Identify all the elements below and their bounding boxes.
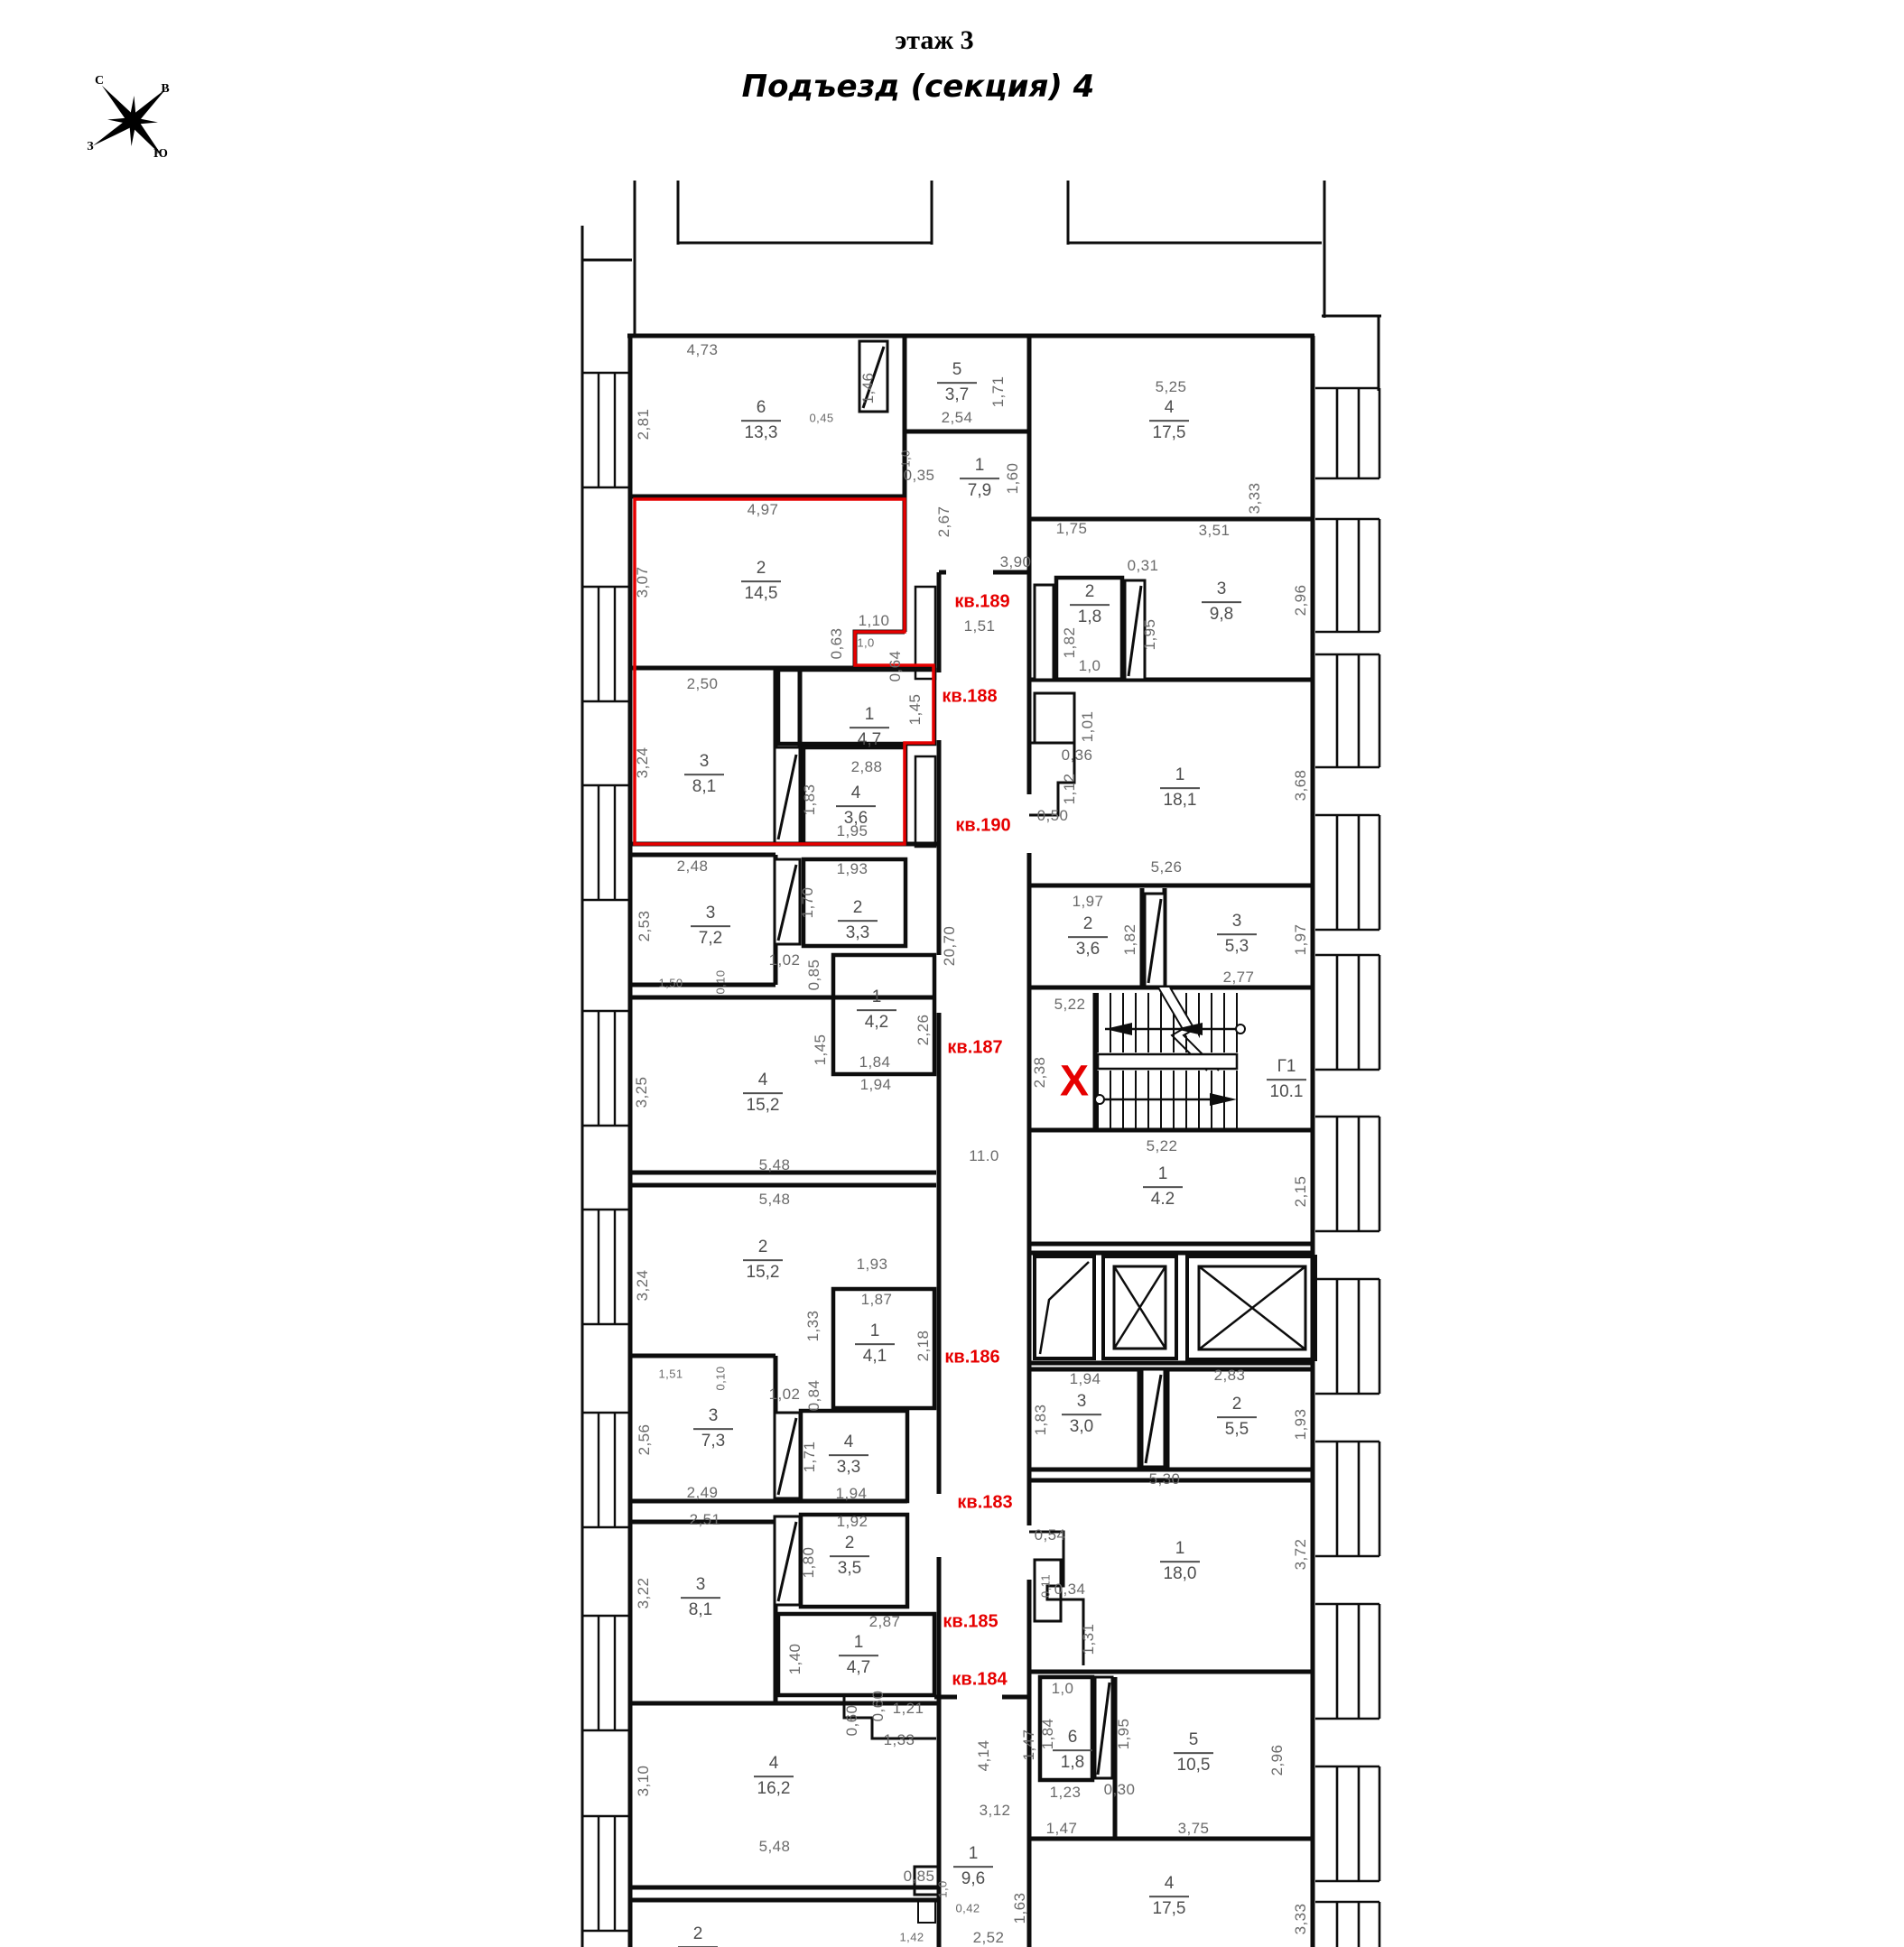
dimension-text: 1,92 [837,1513,868,1531]
room-label: Г110.1 [1267,1057,1306,1102]
dimension-text: 1,71 [989,376,1008,408]
room-area: 4.2 [1151,1190,1175,1210]
dimension-text: 1,84 [1039,1719,1057,1750]
room-label: 38,1 [684,752,724,797]
room-number: 1 [872,987,882,1007]
room-area: 7,2 [699,929,722,949]
dimension-text: 0,34 [1054,1581,1086,1599]
dimension-text: 1,83 [801,784,819,816]
dimension-text: 1,82 [1061,627,1079,659]
room-area: 8,1 [689,1600,712,1620]
dimension-text: 5,25 [1156,378,1187,396]
room-label: 14,7 [839,1633,878,1678]
room-number: 1 [975,456,985,476]
dimension-text: 3,90 [1000,553,1032,571]
fraction-bar [1217,1416,1257,1418]
dimension-text: 1,51 [964,617,996,635]
room-area: 16,2 [757,1779,791,1799]
dimension-text: 3,24 [634,747,652,779]
room-label: 37,3 [693,1406,733,1451]
dimension-text: 1,95 [837,822,868,840]
room-label: 39,8 [1202,579,1241,625]
room-label: 416,2 [754,1754,794,1799]
dimension-text: 0,63 [828,628,846,660]
room-number: 1 [870,1321,880,1341]
dimension-text: 2,96 [1292,585,1310,617]
dimension-text: 1,0 [1079,657,1101,675]
fraction-bar [1267,1079,1306,1080]
dimension-text: 1,42 [900,1931,924,1944]
room-area: 3,6 [1076,940,1100,960]
fraction-bar [754,1775,794,1777]
dimension-text: 5,26 [1151,858,1183,876]
fraction-bar [684,774,724,775]
dimension-text: 0,85 [904,1868,935,1886]
room-label: 37,2 [691,904,730,949]
room-area: 4,1 [863,1347,887,1367]
room-number: 5 [1189,1730,1199,1750]
room-number: 2 [757,559,766,579]
dimension-text: 2,81 [635,409,653,440]
room-area: 3,0 [1070,1417,1093,1437]
dimension-text: 0,42 [956,1902,980,1915]
dimension-text: 3,22 [635,1578,653,1609]
apartment-number-label: кв.190 [955,816,1010,837]
dimension-text: 3,12 [980,1802,1011,1820]
apartment-number-label: кв.184 [952,1670,1007,1691]
room-number: 4 [758,1071,768,1090]
room-label: 2 [678,1924,718,1947]
room-number: Г1 [1277,1057,1296,1077]
fraction-bar [829,1454,868,1456]
fraction-bar [681,1597,720,1599]
room-label: 118,1 [1160,765,1200,811]
dimension-text: 2,48 [677,858,709,876]
dimension-text: 2,67 [935,506,953,538]
dimension-text: 1,51 [659,1368,683,1381]
room-label: 14,7 [850,705,889,750]
dimension-text: 0,85 [805,960,823,991]
fraction-bar [839,1655,878,1656]
room-number: 6 [1068,1728,1078,1748]
room-number: 1 [1158,1164,1168,1184]
dimension-text: 2,56 [636,1424,654,1456]
fraction-bar [741,580,781,582]
room-label: 61,8 [1053,1728,1092,1773]
room-number: 4 [844,1432,854,1452]
dimension-text: 1,95 [1141,619,1159,651]
room-area: 7,9 [968,481,991,501]
dimension-text: 1,50 [659,977,683,990]
room-label: 14,2 [857,987,896,1033]
dimension-text: 5,48 [759,1838,791,1856]
room-number: 1 [969,1844,979,1864]
dimension-text: 1,45 [812,1034,830,1066]
apartment-number-label: кв.185 [943,1612,998,1633]
room-area: 15,2 [747,1096,780,1116]
room-area: 10,5 [1177,1756,1211,1775]
dimension-text: 20,70 [941,926,959,967]
dimension-text: 11.0 [969,1147,998,1165]
room-number: 2 [1085,582,1095,602]
room-number: 1 [1175,1539,1185,1559]
dimension-text: 1,87 [861,1291,893,1309]
dimension-text: 1,0 [1052,1680,1074,1698]
dimension-text: 1,0 [936,1880,950,1897]
room-number: 1 [865,705,875,725]
compass-letter: С [95,74,104,88]
room-number: 3 [1217,579,1227,599]
fraction-bar [855,1343,895,1345]
room-area: 10.1 [1270,1082,1304,1102]
dimension-text: 2,18 [915,1330,933,1362]
room-number: 3 [1232,912,1242,932]
room-area: 9,8 [1210,605,1233,625]
fraction-bar [1160,787,1200,789]
room-label: 415,2 [743,1071,783,1116]
dimension-text: 5,22 [1147,1137,1178,1155]
dimension-text: 1,84 [859,1053,891,1071]
dimension-text: 3,07 [634,567,652,598]
room-label: 53,7 [937,360,977,405]
fraction-bar [741,420,781,422]
room-number: 4 [1165,1874,1175,1894]
room-area: 3,5 [838,1559,861,1579]
dimension-text: 2,77 [1223,969,1255,987]
fraction-bar [1160,1561,1200,1562]
dimension-text: 1,94 [836,1485,868,1503]
dimension-text: 1,47 [1020,1729,1038,1761]
fraction-bar [1149,420,1189,422]
dimension-text: 3,72 [1292,1539,1310,1571]
room-label: 118,0 [1160,1539,1200,1584]
fraction-bar [838,920,878,922]
dimension-text: 0,50 [1037,807,1069,825]
room-label: 19,6 [953,1844,993,1889]
room-area: 8,1 [692,777,716,797]
room-number: 3 [700,752,710,772]
fraction-bar [1070,604,1110,606]
dimension-text: 3,75 [1178,1820,1210,1838]
dimension-text: 0,64 [887,651,905,682]
dimension-text: 0,31 [1128,557,1159,575]
dimension-text: 2,51 [690,1511,721,1529]
fraction-bar [850,727,889,728]
dimension-text: 3,25 [633,1077,651,1108]
dimension-text: 5,30 [1149,1470,1181,1488]
dimension-text: 0,10 [714,1367,728,1391]
dimension-text: 2,38 [1031,1057,1049,1089]
dimension-text: 1,02 [769,1386,801,1404]
dimension-text: 1,01 [1079,711,1097,743]
dimension-text: 2,87 [869,1613,901,1631]
dimension-text: 1,40 [786,1644,804,1675]
compass-letter: В [161,82,169,97]
dimension-text: 0,36 [1062,746,1093,765]
room-area: 3,3 [846,923,869,943]
dimension-text: 0,54 [1035,1526,1066,1544]
apartment-number-label: кв.188 [942,687,997,708]
dimension-text: 1,71 [801,1442,819,1473]
dimension-text: 1,75 [1056,520,1088,538]
room-area: 1,8 [1061,1753,1084,1773]
fraction-bar [1202,601,1241,603]
fraction-bar [1174,1752,1213,1754]
room-label: 613,3 [741,398,781,443]
room-area: 14,5 [745,584,778,604]
room-area: 4,2 [865,1013,888,1033]
room-area: 3,7 [945,385,969,405]
dimension-text: 1,02 [769,951,801,969]
room-number: 6 [757,398,766,418]
fraction-bar [1149,1896,1189,1897]
room-label: 14.2 [1143,1164,1183,1210]
room-label: 417,5 [1149,398,1189,443]
dimension-text: 1,95 [1115,1719,1133,1750]
dimension-text: 2,15 [1292,1176,1310,1208]
dimension-text: 2,52 [973,1929,1005,1947]
room-area: 4,7 [858,730,881,750]
fraction-bar [1217,933,1257,935]
fraction-bar [937,382,977,384]
room-number: 2 [693,1924,703,1944]
dimension-text: 1,97 [1073,893,1104,911]
dimension-text: 1,97 [1292,924,1310,956]
room-label: 33,0 [1062,1392,1101,1437]
room-area: 17,5 [1153,423,1186,443]
fraction-bar [743,1092,783,1094]
dimension-text: 1,0 [857,636,874,650]
room-number: 2 [1232,1395,1242,1414]
dimension-text: 4,14 [975,1740,993,1772]
room-label: 21,8 [1070,582,1110,627]
dimension-text: 1,60 [1004,463,1022,495]
dimension-text: 1,21 [893,1700,924,1718]
dimension-text: 2,49 [687,1484,719,1502]
room-label: 214,5 [741,559,781,604]
room-area: 9,6 [961,1869,985,1889]
dimension-text: 3,24 [634,1270,652,1302]
room-label: 25,5 [1217,1395,1257,1440]
dimension-text: 2,53 [636,911,654,942]
dimension-text: 1,33 [804,1311,822,1342]
dimension-text: 1,0 [899,450,913,467]
room-number: 4 [769,1754,779,1774]
fraction-bar [1062,1414,1101,1415]
room-label: 38,1 [681,1575,720,1620]
dimension-text: 0,60 [843,1705,861,1737]
dimension-text: 2,26 [915,1015,933,1046]
room-label: 43,3 [829,1432,868,1478]
stair-cross-mark: Х [1060,1057,1089,1107]
dimension-text: 3,51 [1199,522,1231,540]
dimension-text: 1,80 [800,1547,818,1579]
room-area: 17,5 [1153,1899,1186,1919]
room-number: 3 [696,1575,706,1595]
room-area: 1,8 [1078,607,1101,627]
room-number: 3 [706,904,716,923]
dimension-text: 1,33 [884,1731,915,1749]
fraction-bar [691,925,730,927]
room-area: 5,3 [1225,937,1249,957]
room-label: 17,9 [960,456,999,501]
dimension-text: 0,60 [869,1691,887,1722]
room-number: 3 [709,1406,719,1426]
fraction-bar [693,1428,733,1430]
dimension-text: 4,97 [748,501,779,519]
room-number: 1 [1175,765,1185,785]
room-label: 417,5 [1149,1874,1189,1919]
room-area: 7,3 [701,1432,725,1451]
room-number: 1 [854,1633,864,1653]
room-area: 5,5 [1225,1420,1249,1440]
apartment-number-label: кв.187 [947,1038,1002,1059]
dimension-text: 3,68 [1292,770,1310,802]
dimension-text: 5,22 [1054,996,1086,1014]
fraction-bar [1068,936,1108,938]
dimension-text: 1,93 [837,860,868,878]
dimension-text: 2,88 [851,758,883,776]
dimension-text: 1,12 [1061,774,1079,805]
fraction-bar [1143,1186,1183,1188]
dimension-text: 2,96 [1268,1745,1286,1776]
dimension-text: 1,70 [799,887,817,919]
dimension-text: 1,45 [906,694,924,726]
room-area: 3,3 [837,1458,860,1478]
room-area: 18,1 [1164,791,1197,811]
fraction-bar [830,1555,869,1557]
dimension-text: 1,31 [1080,1624,1098,1655]
dimension-text: 3,33 [1292,1904,1310,1935]
dimension-text: 1,93 [1292,1409,1310,1441]
room-number: 4 [851,783,861,803]
dimension-text: 1,94 [1070,1370,1101,1388]
dimension-text: 0,45 [810,412,834,425]
room-area: 18,0 [1164,1564,1197,1584]
dimension-text: 1,10 [859,612,890,630]
dimension-text: 1,83 [1032,1405,1050,1436]
dimension-text: 0,84 [805,1380,823,1412]
dimension-text: 5,48 [759,1156,791,1174]
dimension-text: 0,10 [714,970,728,995]
room-label: 23,6 [1068,914,1108,960]
dimension-text: 1,23 [1050,1784,1082,1802]
room-number: 2 [1083,914,1093,934]
fraction-bar [1053,1749,1092,1751]
dimension-text: 1,47 [1046,1820,1078,1838]
fraction-bar [743,1259,783,1261]
dimension-text: 1,82 [1121,924,1139,956]
dimension-text: 1,46 [859,373,878,404]
apartment-number-label: кв.189 [954,592,1009,613]
room-label: 23,3 [838,898,878,943]
dimension-text: 5,48 [759,1191,791,1209]
room-area: 15,2 [747,1263,780,1283]
dimension-text: 3,10 [635,1766,653,1797]
dimension-text: 0,30 [1104,1781,1136,1799]
fraction-bar [857,1009,896,1011]
dimension-text: 2,54 [942,409,973,427]
dimension-text: 2,83 [1214,1367,1246,1385]
room-area: 4,7 [847,1658,870,1678]
room-label: 14,1 [855,1321,895,1367]
room-number: 2 [845,1534,855,1553]
room-label: 510,5 [1174,1730,1213,1775]
compass-letter: З [87,140,93,154]
room-number: 4 [1165,398,1175,418]
apartment-number-label: кв.183 [957,1493,1012,1514]
floor-plan-page: этаж 3 Подъезд (секция) 4 [0,0,1904,1947]
dimension-text: 1,94 [860,1076,892,1094]
fraction-bar [953,1866,993,1868]
dimension-text: 0,11 [1039,1574,1053,1598]
dimension-text: 1,63 [1011,1893,1029,1924]
dimension-text: 0,35 [904,467,935,485]
fraction-bar [836,805,876,807]
room-number: 3 [1077,1392,1087,1412]
fraction-bar [960,477,999,479]
dimension-text: 1,93 [857,1256,888,1274]
room-label: 23,5 [830,1534,869,1579]
dimension-text: 3,33 [1246,483,1264,515]
apartment-number-label: кв.186 [944,1348,999,1368]
room-number: 2 [853,898,863,918]
labels-layer: 613,3214,538,114,743,623,337,214,2415,22… [0,0,1904,1947]
room-number: 5 [952,360,962,380]
room-label: 215,2 [743,1238,783,1283]
room-area: 13,3 [745,423,778,443]
room-label: 35,3 [1217,912,1257,957]
dimension-text: 2,50 [687,675,719,693]
room-number: 2 [758,1238,768,1257]
dimension-text: 4,73 [687,341,719,359]
compass-letter: Ю [153,147,168,162]
